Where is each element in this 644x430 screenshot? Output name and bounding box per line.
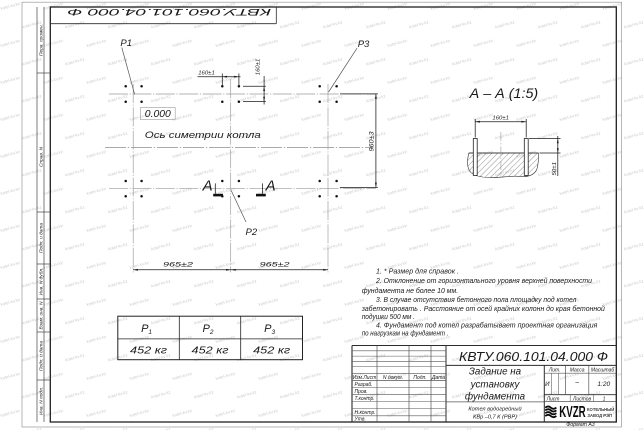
- svg-text:А: А: [265, 178, 276, 195]
- svg-text:Дата: Дата: [431, 375, 445, 381]
- svg-text:N докум.: N докум.: [383, 375, 403, 381]
- svg-text:фундамента: фундамента: [465, 392, 526, 403]
- svg-text:фундамента не более 10 мм.: фундамента не более 10 мм.: [362, 286, 459, 295]
- svg-text:Взам. инв. N: Взам. инв. N: [39, 301, 45, 329]
- svg-text:КВТУ.060.101.04.000 Ф: КВТУ.060.101.04.000 Ф: [459, 349, 608, 364]
- svg-text:965±2: 965±2: [163, 262, 194, 269]
- svg-text:P2: P2: [245, 227, 257, 238]
- svg-text:1. * Размер для справок .: 1. * Размер для справок .: [376, 266, 459, 275]
- svg-text:452 кг: 452 кг: [130, 345, 167, 356]
- svg-text:Справ. N: Справ. N: [39, 146, 45, 167]
- svg-text:P1: P1: [120, 38, 132, 49]
- svg-text:2. Отклонение от горизонтал: 2. Отклонение от горизонтального уровня …: [375, 276, 593, 285]
- svg-text:КВТУ.060.101.04.000 Ф: КВТУ.060.101.04.000 Ф: [66, 7, 271, 18]
- svg-text:Масштаб: Масштаб: [591, 367, 615, 373]
- svg-text:КВр –0,7 К (РВР): КВр –0,7 К (РВР): [473, 414, 517, 420]
- svg-text:–: –: [574, 380, 579, 387]
- svg-text:0.000: 0.000: [145, 109, 171, 120]
- svg-text:Листов: Листов: [572, 397, 592, 403]
- svg-text:Инв. N подл.: Инв. N подл.: [39, 387, 45, 415]
- svg-text:Пров.: Пров.: [355, 389, 368, 395]
- svg-text:Утв.: Утв.: [355, 417, 366, 423]
- svg-text:А – А (1:5): А – А (1:5): [469, 86, 539, 101]
- svg-text:установку: установку: [470, 380, 521, 391]
- svg-text:160±1: 160±1: [492, 115, 509, 121]
- svg-text:3. В случае отсутствия бет: 3. В случае отсутствия бетонного пола пл…: [376, 295, 577, 304]
- svg-text:Котел водогрейный: Котел водогрейный: [468, 406, 521, 413]
- svg-text:1:20: 1:20: [597, 381, 610, 388]
- svg-text:452 кг: 452 кг: [192, 345, 229, 356]
- svg-text:Изм.Лист: Изм.Лист: [353, 375, 377, 381]
- svg-text:960±3: 960±3: [369, 131, 376, 152]
- svg-text:1: 1: [603, 397, 606, 403]
- svg-text:160±1: 160±1: [256, 59, 262, 76]
- svg-text:50±1: 50±1: [552, 162, 558, 176]
- svg-text:подушки 500 мм .: подушки 500 мм .: [362, 312, 415, 321]
- svg-text:Формат А3: Формат А3: [566, 422, 594, 428]
- svg-text:Подп. и дата: Подп. и дата: [39, 223, 45, 253]
- svg-text:Масса: Масса: [570, 367, 585, 373]
- svg-text:P3: P3: [358, 39, 370, 50]
- svg-text:А: А: [202, 178, 213, 195]
- svg-text:КОТЕЛЬНЫЙ: КОТЕЛЬНЫЙ: [587, 407, 614, 412]
- svg-text:Подп. и дата: Подп. и дата: [39, 341, 45, 371]
- svg-text:Разраб.: Разраб.: [355, 382, 373, 388]
- svg-text:ЗАВОД РЭП: ЗАВОД РЭП: [587, 413, 612, 418]
- svg-text:Перв. примен.: Перв. примен.: [39, 24, 45, 56]
- svg-text:Т.контр.: Т.контр.: [355, 396, 375, 402]
- svg-text:по нагрузкам на фундамент .: по нагрузкам на фундамент .: [362, 329, 449, 338]
- svg-text:Лит.: Лит.: [548, 367, 561, 373]
- svg-text:Лист: Лист: [546, 397, 560, 403]
- svg-text:KVZR: KVZR: [559, 404, 586, 421]
- svg-text:965±2: 965±2: [260, 262, 291, 269]
- svg-text:И: И: [545, 381, 550, 388]
- svg-text:Подп.: Подп.: [413, 375, 426, 381]
- svg-text:Задание на: Задание на: [469, 367, 522, 378]
- svg-text:Инв. N дубл.: Инв. N дубл.: [39, 268, 45, 296]
- svg-text:452 кг: 452 кг: [253, 345, 290, 356]
- svg-text:Н.контр.: Н.контр.: [355, 410, 376, 416]
- svg-text:160±1: 160±1: [198, 70, 215, 76]
- svg-text:Ось симетрии котла: Ось симетрии котла: [145, 130, 261, 141]
